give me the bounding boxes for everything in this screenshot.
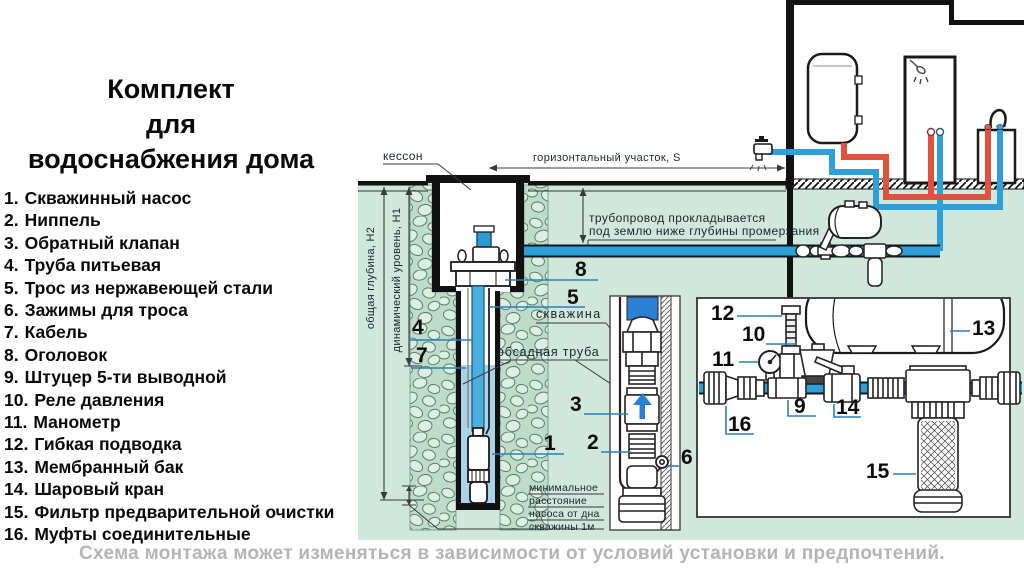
callout-2: 2 bbox=[587, 431, 599, 454]
callout-12: 12 bbox=[711, 302, 734, 325]
pump-detail-view bbox=[610, 296, 680, 530]
callout-16: 16 bbox=[728, 413, 751, 436]
callout-7: 7 bbox=[416, 344, 428, 367]
pipe-note-line2: под землю ниже глубины промерзания bbox=[589, 224, 820, 238]
min-distance-line1: минимальное bbox=[529, 482, 598, 494]
well-label: скважина bbox=[536, 307, 602, 321]
coupling-right bbox=[972, 372, 1020, 404]
callout-8: 8 bbox=[575, 258, 587, 281]
drop-pipe bbox=[472, 286, 484, 431]
callout-13: 13 bbox=[972, 317, 995, 340]
house-roof-line bbox=[786, 0, 954, 5]
total-depth-label: общая глубина, Н2 bbox=[365, 227, 377, 329]
callout-3: 3 bbox=[570, 393, 582, 416]
filter-main bbox=[864, 244, 886, 286]
union-corrugated bbox=[868, 378, 904, 398]
borehole-pump bbox=[468, 428, 489, 503]
footer-note: Схема монтажа может изменяться в зависим… bbox=[0, 543, 1024, 565]
kesson-label: кессон bbox=[383, 149, 423, 163]
callout-9: 9 bbox=[794, 395, 806, 418]
callout-4: 4 bbox=[412, 316, 424, 339]
callout-6: 6 bbox=[681, 446, 693, 469]
foundation-wall bbox=[787, 188, 793, 298]
house-wall bbox=[786, 0, 794, 188]
outdoor-faucet-icon bbox=[750, 136, 772, 171]
callout-1: 1 bbox=[544, 432, 556, 455]
well-shaft bbox=[456, 286, 500, 510]
callout-15: 15 bbox=[866, 460, 890, 483]
water-supply-scheme-page: Комплект для водоснабжения дома 1.Скважи… bbox=[0, 0, 1024, 576]
callout-14: 14 bbox=[836, 396, 860, 419]
sink bbox=[978, 110, 1015, 183]
min-distance-line3: насоса от дна bbox=[529, 508, 600, 520]
installation-diagram: кессон горизонтальный участок, S трубопр… bbox=[0, 0, 1024, 576]
dynamic-level-label: динамический уровень, Н1 bbox=[391, 208, 403, 353]
min-distance-line4: скважины 1м bbox=[529, 521, 595, 533]
callout-10: 10 bbox=[742, 323, 765, 346]
horizontal-section-label: горизонтальный участок, S bbox=[533, 152, 681, 164]
callout-5: 5 bbox=[567, 286, 579, 309]
min-distance-line2: расстояние bbox=[529, 495, 587, 507]
pipe-note-line1: трубопровод прокладывается bbox=[589, 211, 766, 225]
callout-11: 11 bbox=[712, 348, 735, 371]
casing-pipe-label: обсадная труба bbox=[497, 345, 600, 359]
horizontal-section-dimension bbox=[489, 165, 785, 172]
pressure-tank-main bbox=[829, 201, 881, 238]
water-heater bbox=[808, 54, 862, 143]
